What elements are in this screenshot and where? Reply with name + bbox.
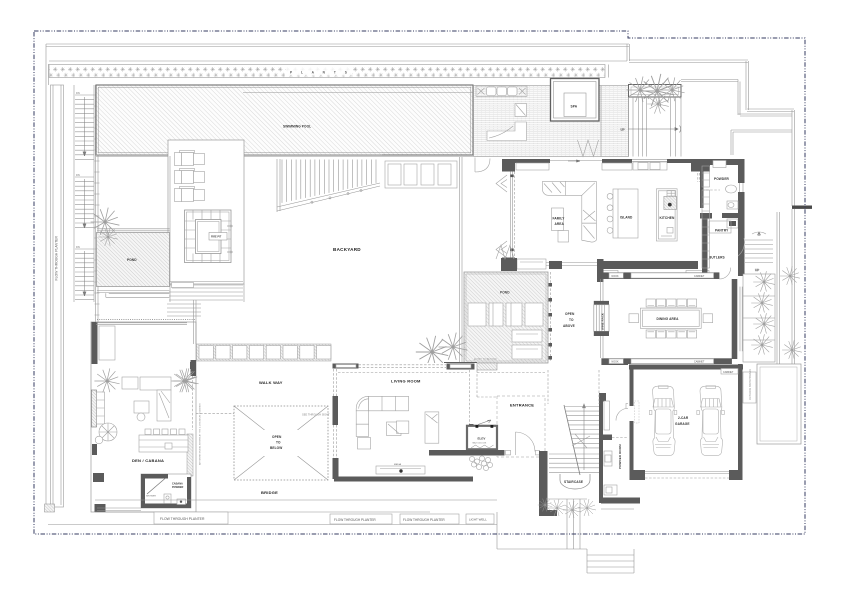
svg-text:DEN / CABANA: DEN / CABANA xyxy=(132,458,164,463)
svg-text:DN: DN xyxy=(76,91,80,95)
svg-text:BACKYARD: BACKYARD xyxy=(333,247,361,252)
svg-text:STAIRCASE: STAIRCASE xyxy=(564,480,583,484)
svg-text:ENTRY TO BEYOND: ENTRY TO BEYOND xyxy=(474,358,497,361)
svg-text:SEE THROUGH SIGHT: SEE THROUGH SIGHT xyxy=(302,413,330,417)
svg-text:MEDIA: MEDIA xyxy=(394,463,401,466)
svg-text:DN: DN xyxy=(76,173,80,177)
svg-text:ARTWORK MODEL WHERE AT THE 2.1: ARTWORK MODEL WHERE AT THE 2.1 MUSEUM ST… xyxy=(199,403,202,465)
svg-text:POWDER: POWDER xyxy=(714,177,730,181)
svg-text:POND: POND xyxy=(500,291,510,295)
svg-text:FLOW THROUGH PLANTER: FLOW THROUGH PLANTER xyxy=(334,518,376,522)
svg-text:TO: TO xyxy=(276,441,281,445)
svg-text:POWDER ROOM: POWDER ROOM xyxy=(618,444,622,469)
svg-text:DINING AREA: DINING AREA xyxy=(657,317,680,321)
svg-text:OPEN: OPEN xyxy=(565,312,575,316)
svg-text:ELEV: ELEV xyxy=(478,437,486,441)
svg-text:NOOK: NOOK xyxy=(612,275,619,278)
svg-text:CABINET: CABINET xyxy=(723,371,734,374)
svg-text:TO: TO xyxy=(569,318,574,322)
svg-text:BRIDGE: BRIDGE xyxy=(261,490,278,495)
svg-text:NOOK: NOOK xyxy=(612,361,619,364)
svg-text:POND: POND xyxy=(127,258,137,262)
svg-text:WALK WAY: WALK WAY xyxy=(259,380,283,385)
svg-text:FLOW THROUGH PLANTER: FLOW THROUGH PLANTER xyxy=(160,517,205,521)
svg-text:MAX 1000 LBS: MAX 1000 LBS xyxy=(473,442,487,445)
svg-text:FLOW THROUGH PLANTER: FLOW THROUGH PLANTER xyxy=(403,518,445,522)
svg-text:KITCHEN: KITCHEN xyxy=(660,216,675,220)
svg-text:OPEN: OPEN xyxy=(272,435,282,439)
svg-text:SHOWER: SHOWER xyxy=(146,496,156,498)
svg-text:GARAGE: GARAGE xyxy=(675,422,690,426)
svg-text:CABINET: CABINET xyxy=(694,361,705,364)
svg-text:FAMILY: FAMILY xyxy=(553,217,566,221)
svg-text:BELOW: BELOW xyxy=(270,446,282,450)
svg-text:OUTDOOR SWITCHBOARD: OUTDOOR SWITCHBOARD xyxy=(749,369,752,400)
svg-text:UP: UP xyxy=(621,128,625,132)
svg-text:SPA: SPA xyxy=(571,105,578,109)
svg-text:WINE RACK: WINE RACK xyxy=(600,313,604,330)
svg-text:LIGHT WELL: LIGHT WELL xyxy=(469,518,487,522)
svg-text:2-CAR: 2-CAR xyxy=(678,416,689,420)
svg-text:P L A N T S: P L A N T S xyxy=(290,71,351,75)
svg-text:CABINET: CABINET xyxy=(694,275,705,278)
svg-text:ABOVE: ABOVE xyxy=(563,324,575,328)
svg-text:UP: UP xyxy=(755,268,759,272)
svg-text:POWDER: POWDER xyxy=(172,486,183,489)
svg-text:ENTRANCE: ENTRANCE xyxy=(510,403,534,408)
svg-text:AREA: AREA xyxy=(555,222,565,226)
svg-text:ISLAND: ISLAND xyxy=(620,216,633,220)
svg-text:FLOW THROUGH PLANTER: FLOW THROUGH PLANTER xyxy=(55,236,59,281)
svg-text:LIVING ROOM: LIVING ROOM xyxy=(391,379,421,384)
svg-text:DN: DN xyxy=(76,245,80,249)
svg-text:FIRE PIT: FIRE PIT xyxy=(211,236,222,239)
svg-text:PANTRY: PANTRY xyxy=(715,229,729,233)
svg-text:BUTLERS: BUTLERS xyxy=(709,256,725,260)
svg-text:SWIMMING POOL: SWIMMING POOL xyxy=(283,125,311,129)
